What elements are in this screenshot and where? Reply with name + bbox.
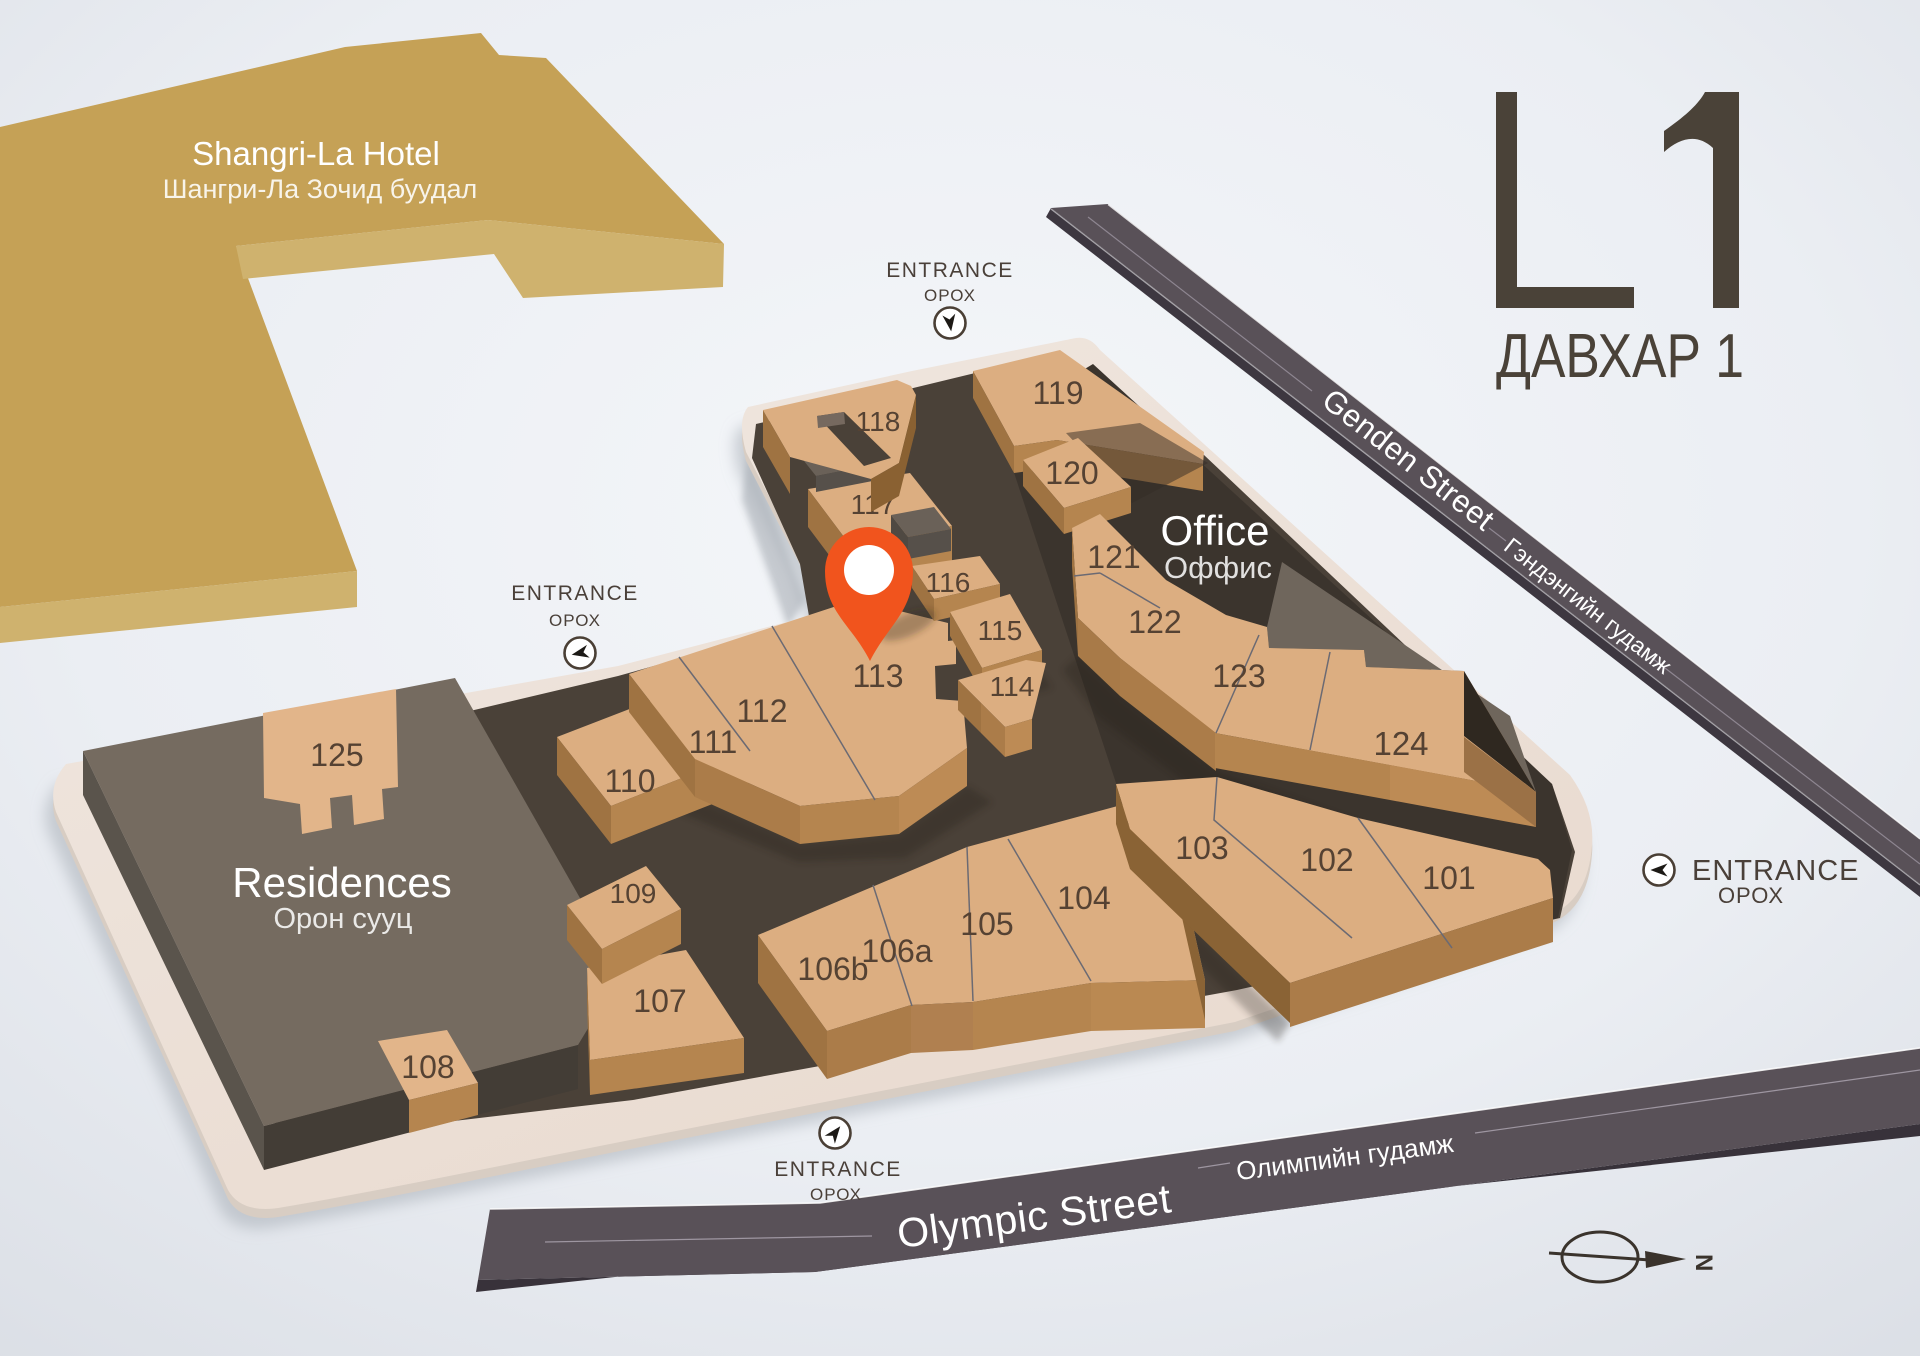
svg-text:Орон сууц: Орон сууц <box>274 903 413 935</box>
svg-text:123: 123 <box>1212 658 1265 694</box>
svg-text:ОРОХ: ОРОХ <box>1718 883 1784 908</box>
svg-text:Shangri-La Hotel: Shangri-La Hotel <box>192 135 440 172</box>
svg-text:Оффис: Оффис <box>1164 550 1272 585</box>
svg-text:Residences: Residences <box>232 859 451 906</box>
svg-text:112: 112 <box>736 693 787 729</box>
svg-text:108: 108 <box>401 1049 454 1085</box>
svg-text:Шангри-Ла Зочид буудал: Шангри-Ла Зочид буудал <box>163 174 477 204</box>
svg-text:105: 105 <box>960 906 1013 942</box>
svg-text:106a: 106a <box>861 933 932 969</box>
svg-text:ДАВХАР 1: ДАВХАР 1 <box>1496 322 1744 391</box>
svg-text:102: 102 <box>1300 842 1353 878</box>
svg-text:107: 107 <box>633 983 686 1019</box>
svg-text:113: 113 <box>852 658 903 694</box>
svg-text:115: 115 <box>978 615 1023 646</box>
svg-text:111: 111 <box>689 724 738 760</box>
svg-text:122: 122 <box>1128 604 1181 640</box>
svg-text:119: 119 <box>1032 375 1083 411</box>
svg-text:116: 116 <box>926 567 971 598</box>
svg-text:109: 109 <box>610 878 657 909</box>
svg-text:103: 103 <box>1175 830 1228 866</box>
svg-text:106b: 106b <box>797 951 868 987</box>
svg-text:ENTRANCE: ENTRANCE <box>886 259 1014 282</box>
svg-text:ОРОХ: ОРОХ <box>549 611 601 630</box>
svg-text:ENTRANCE: ENTRANCE <box>774 1158 902 1181</box>
svg-text:104: 104 <box>1057 880 1110 916</box>
svg-text:124: 124 <box>1373 725 1428 762</box>
svg-text:110: 110 <box>604 763 655 799</box>
svg-text:101: 101 <box>1422 860 1475 896</box>
svg-text:ENTRANCE: ENTRANCE <box>511 582 639 605</box>
svg-text:120: 120 <box>1045 455 1098 491</box>
svg-text:125: 125 <box>310 737 363 773</box>
svg-text:118: 118 <box>856 406 901 437</box>
svg-text:114: 114 <box>990 671 1035 702</box>
svg-text:ОРОХ: ОРОХ <box>810 1185 862 1204</box>
svg-text:121: 121 <box>1087 539 1140 575</box>
svg-text:ОРОХ: ОРОХ <box>924 286 976 305</box>
svg-text:Office: Office <box>1161 507 1270 554</box>
svg-text:N: N <box>1690 1254 1717 1271</box>
